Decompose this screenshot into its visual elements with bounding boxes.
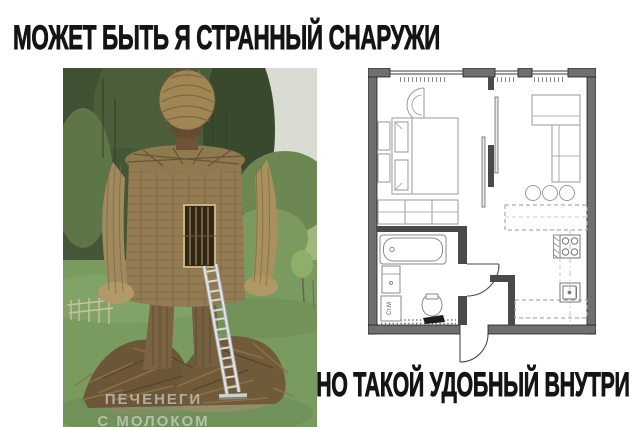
nightstand [378,154,390,182]
bed [392,118,458,194]
top-caption: МОЖЕТ БЫТЬ Я СТРАННЫЙ СНАРУЖИ [13,19,440,58]
watermark-line-2: С МОЛОКОМ [71,411,236,427]
floor-plan: Ст.М [368,68,596,374]
watermark-line-1: ПЕЧЕНЕГИ [71,389,236,411]
bathtub [380,235,446,264]
bar-stools [526,186,575,201]
entrance-door [460,334,488,362]
washing-machine: Ст.М [381,296,401,321]
bottom-caption: НО ТАКОЙ УДОБНЫЙ ВНУТРИ [317,366,630,405]
head [159,70,215,130]
nightstand [378,122,390,150]
watermark: ПЕЧЕНЕГИ С МОЛОКОМ [71,389,236,427]
washing-machine-label: Ст.М [387,302,393,315]
bathroom-vanity [382,266,400,293]
wardrobe [378,200,458,224]
wicker-man-photo: ПЕЧЕНЕГИ С МОЛОКОМ [63,68,317,427]
meme-canvas: МОЖЕТ БЫТЬ Я СТРАННЫЙ СНАРУЖИ [0,0,640,427]
torso-window [183,205,216,267]
